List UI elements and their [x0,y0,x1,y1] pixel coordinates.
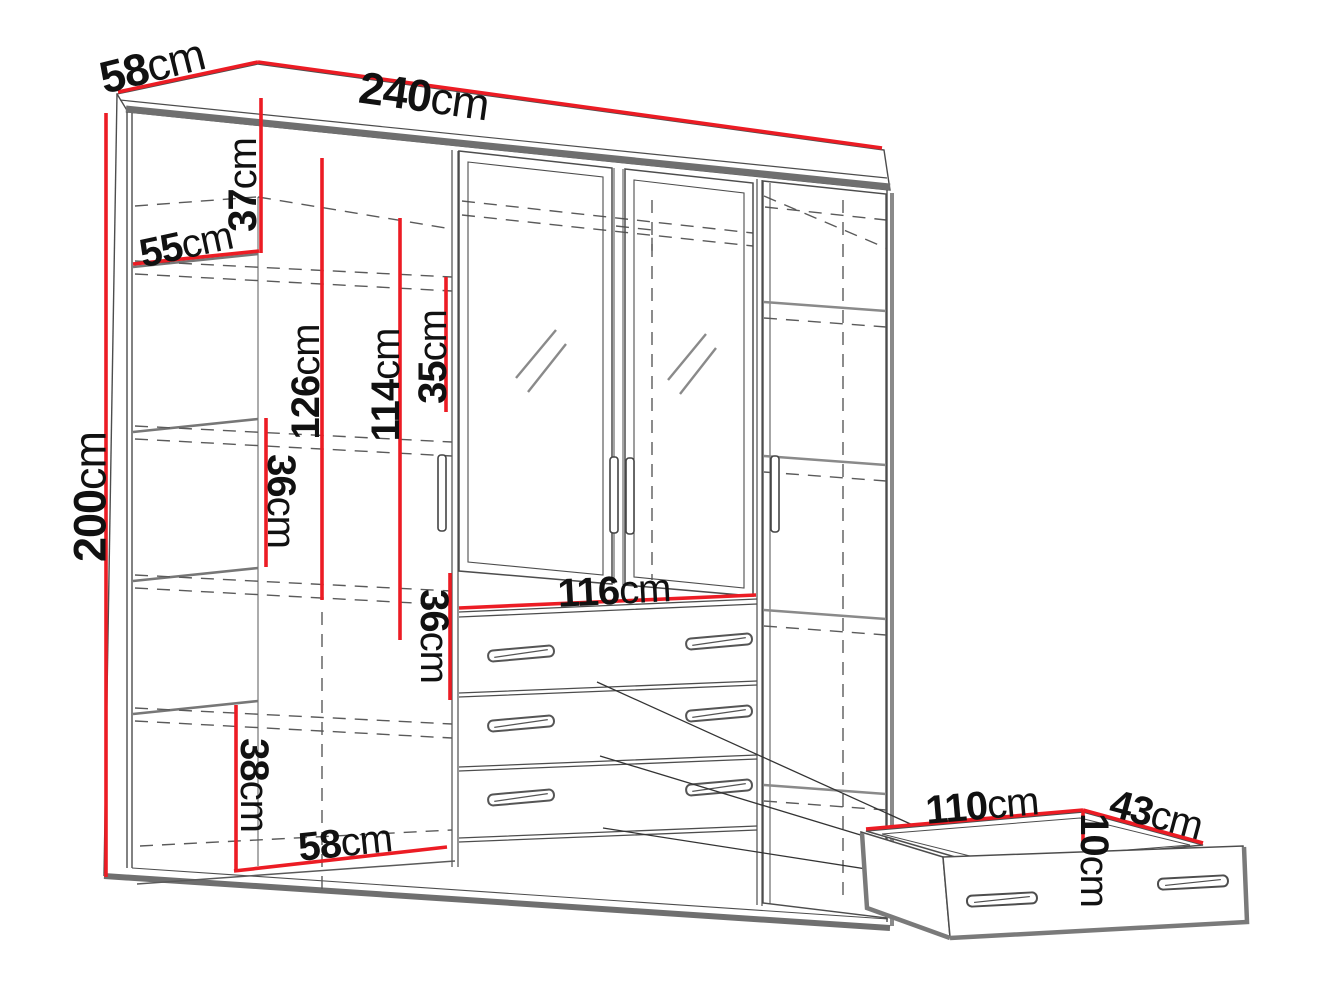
line-art [0,0,1318,989]
shelf-edge [133,419,258,432]
mirror-door-1 [459,151,612,584]
dim-label-door-width: 58cm [296,818,393,868]
left-door-handle [438,455,446,531]
shelf-dash [135,575,452,605]
interior-ceiling-dashed2 [258,197,452,229]
mirror2-handle [626,458,634,534]
right-corner-diagonal [764,196,886,248]
wardrobe-dimension-diagram: 240cm 58cm 200cm 37cm 55cm 126cm 114cm 3… [0,0,1318,989]
mirror-slash [668,334,716,394]
dim-label-drawers-width: 116cm [557,568,672,614]
dim-label-top-gap: 37cm [223,138,263,232]
dim-label-drawer-width: 110cm [924,781,1040,831]
partition-1 [452,150,458,867]
drawer-divider-1 [459,681,757,697]
detached-drawer-handle-right [1158,875,1228,890]
right-section-shelves [764,302,886,810]
dim-label-hanging: 126cm [286,324,326,439]
partition-2 [757,179,762,906]
mirror-door-2 [614,168,753,596]
dim-label-drawer-section: 36cm [414,589,454,683]
detached-drawer-handle-left [967,892,1037,907]
drawer-divider-2 [459,755,757,771]
bottom-edge-thick [104,876,890,928]
shelf-edge [133,568,258,581]
dim-label-height: 200cm [68,432,113,562]
door-handles [438,455,779,534]
dim-label-shelf-gap: 36cm [261,454,301,548]
right-door-handle [771,456,779,532]
dim-label-bottom-gap: 38cm [234,738,274,832]
drawer-handles [488,633,753,806]
dim-label-rail: 114cm [366,329,406,442]
dim-label-mirror-gap: 35cm [413,310,453,404]
right-door [763,181,886,918]
mirror-slash [516,330,566,392]
dim-label-drawer-height: 10cm [1074,813,1114,907]
shelf-edge [133,701,258,714]
shelf-dash [135,708,452,738]
mirror1-handle [610,457,618,533]
